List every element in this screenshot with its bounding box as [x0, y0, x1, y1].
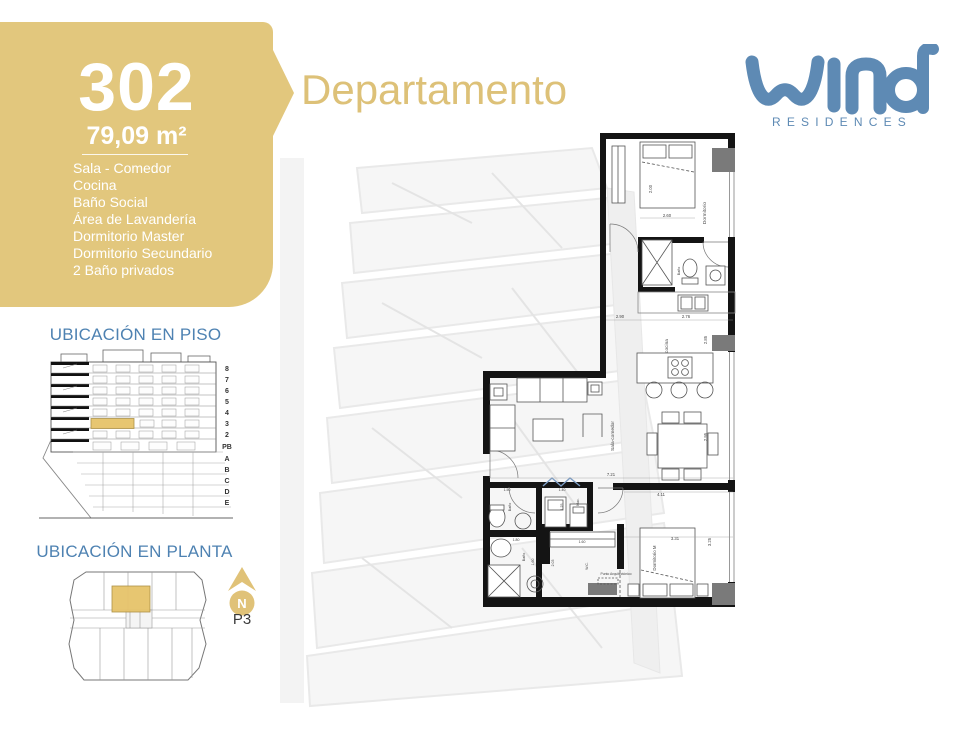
- unit-info-panel: 302 79,09 m² Sala - Comedor Cocina Baño …: [0, 22, 273, 307]
- svg-text:1.50: 1.50: [504, 488, 511, 492]
- svg-text:7: 7: [225, 377, 229, 384]
- elevation-roof: [61, 350, 210, 362]
- svg-text:2.03: 2.03: [551, 560, 555, 567]
- page-title: Departamento: [301, 66, 567, 114]
- svg-text:PB: PB: [222, 444, 232, 451]
- amenity-item: Dormitorio Master: [73, 228, 212, 245]
- svg-text:Mac.: Mac.: [576, 498, 580, 506]
- svg-text:3.31: 3.31: [671, 536, 680, 541]
- svg-text:Sala-comedor: Sala-comedor: [610, 421, 616, 451]
- svg-text:2.90: 2.90: [616, 314, 625, 319]
- divider: [82, 154, 188, 155]
- piso-section-heading: UBICACIÓN EN PISO: [33, 325, 238, 345]
- svg-text:D: D: [224, 489, 229, 496]
- svg-text:cocina: cocina: [664, 339, 670, 353]
- elevation-floors: [51, 362, 216, 452]
- svg-text:Dormitorio: Dormitorio: [702, 202, 708, 224]
- svg-text:2.00: 2.00: [648, 184, 653, 193]
- svg-text:1.80: 1.80: [513, 538, 520, 542]
- amenity-item: 2 Baño privados: [73, 262, 212, 279]
- svg-text:3: 3: [225, 421, 229, 428]
- planta-section-heading: UBICACIÓN EN PLANTA: [22, 542, 247, 562]
- svg-text:2.95: 2.95: [703, 432, 708, 441]
- compass-n-label: N: [237, 596, 246, 611]
- svg-text:Dormitorio M: Dormitorio M: [652, 545, 657, 570]
- svg-text:B: B: [224, 467, 229, 474]
- svg-text:4.11: 4.11: [657, 492, 666, 497]
- svg-text:Baño: Baño: [508, 503, 512, 511]
- svg-text:2.60: 2.60: [663, 213, 672, 218]
- svg-text:E: E: [225, 500, 230, 507]
- svg-text:1.40: 1.40: [559, 488, 566, 492]
- svg-text:1.60: 1.60: [531, 559, 535, 566]
- residences-label: RESIDENCES: [772, 115, 912, 129]
- floor-labels: 87 65 43 2PB AB CD E: [222, 366, 232, 507]
- building-elevation-diagram: 87 65 43 2PB AB CD E: [33, 346, 238, 536]
- svg-text:6: 6: [225, 388, 229, 395]
- wind-residences-logo: RESIDENCES: [738, 44, 943, 139]
- svg-text:4: 4: [225, 410, 229, 417]
- level-label: P3: [221, 611, 263, 628]
- svg-text:Baño: Baño: [677, 267, 681, 275]
- plan-windows: [730, 172, 735, 582]
- svg-text:W.C.: W.C.: [585, 562, 589, 570]
- amenity-item: Sala - Comedor: [73, 160, 212, 177]
- svg-text:8: 8: [225, 366, 229, 373]
- amenity-item: Baño Social: [73, 194, 212, 211]
- svg-text:A: A: [224, 456, 229, 463]
- svg-text:1.60: 1.60: [579, 540, 586, 544]
- apartment-floorplan: 2.00 2.60 Dormitorio Baño 2.90 2.76 2.85…: [470, 120, 770, 620]
- svg-text:2.76: 2.76: [682, 314, 691, 319]
- north-arrow-icon: N: [220, 565, 264, 617]
- amenity-item: Cocina: [73, 177, 212, 194]
- wind-wordmark: [752, 49, 933, 108]
- plan-furniture: [488, 142, 735, 598]
- svg-text:Baño: Baño: [522, 553, 526, 561]
- unit-area: 79,09 m²: [0, 122, 273, 151]
- unit-highlight-elevation: [91, 419, 134, 429]
- unit-highlight-plan: [112, 586, 150, 612]
- floor-location-diagram: [56, 560, 221, 692]
- unit-number: 302: [0, 48, 273, 126]
- svg-text:Punto Arquitectónico: Punto Arquitectónico: [600, 572, 631, 576]
- svg-text:1.25: 1.25: [560, 504, 564, 511]
- amenities-list: Sala - Comedor Cocina Baño Social Área d…: [73, 160, 212, 279]
- svg-text:7.21: 7.21: [607, 472, 616, 477]
- svg-text:3.25: 3.25: [707, 537, 712, 546]
- svg-text:2: 2: [225, 432, 229, 439]
- amenity-item: Área de Lavandería: [73, 211, 212, 228]
- brochure-page: { "colors": {"gold":"#e2c77d","heading_b…: [0, 0, 979, 734]
- svg-text:C: C: [224, 478, 229, 485]
- gold-arrow-pointer: [273, 50, 294, 136]
- amenity-item: Dormitorio Secundario: [73, 245, 212, 262]
- svg-text:2.85: 2.85: [703, 335, 708, 344]
- svg-text:5: 5: [225, 399, 229, 406]
